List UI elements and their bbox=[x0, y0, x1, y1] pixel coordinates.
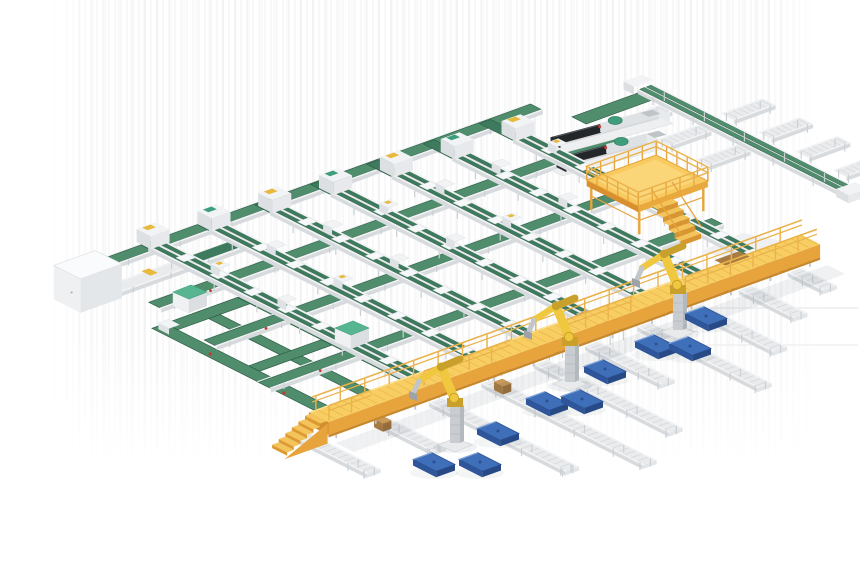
pallet bbox=[410, 453, 458, 479]
branch-spur-table bbox=[758, 117, 813, 144]
scene bbox=[0, 0, 860, 580]
branch-spur-table bbox=[796, 136, 851, 163]
pallet bbox=[456, 453, 504, 479]
control-cabinet bbox=[54, 251, 122, 313]
production-line-render: 3D render of an automated conveyor sorti… bbox=[0, 0, 860, 580]
branch-spur-table bbox=[657, 125, 712, 152]
branch-spur-table bbox=[721, 99, 776, 126]
